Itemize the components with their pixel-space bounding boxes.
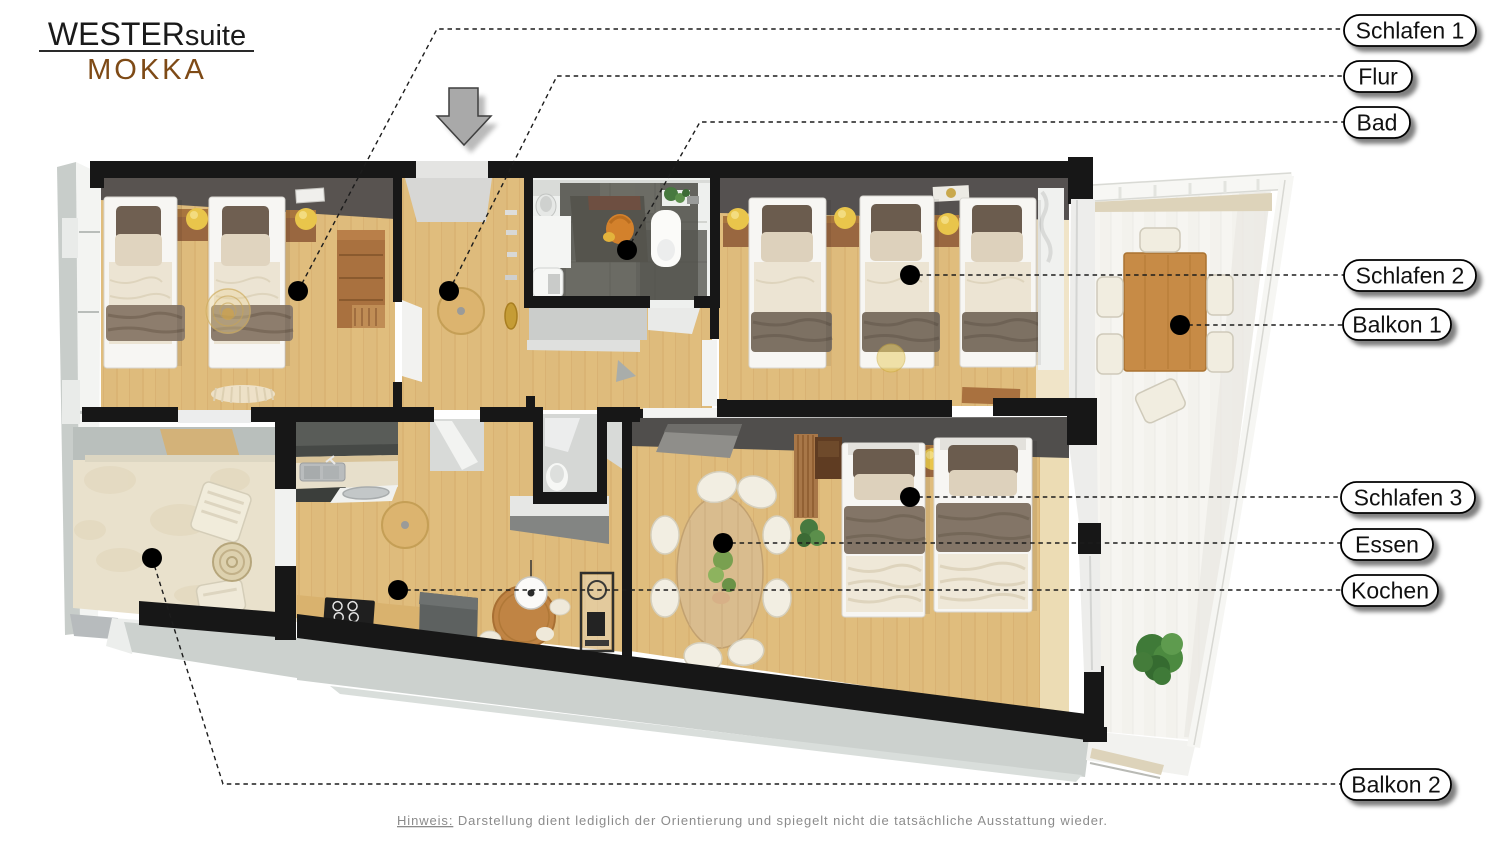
svg-text:Kochen: Kochen xyxy=(1351,578,1429,604)
svg-text:Essen: Essen xyxy=(1355,532,1419,558)
svg-text:WESTERsuite: WESTERsuite xyxy=(48,16,246,52)
svg-text:Balkon 1: Balkon 1 xyxy=(1352,312,1442,338)
svg-text:Bad: Bad xyxy=(1357,110,1398,136)
svg-text:Hinweis: Darstellung dient led: Hinweis: Darstellung dient lediglich der… xyxy=(397,813,1108,828)
svg-text:Flur: Flur xyxy=(1358,64,1398,90)
svg-text:Balkon 2: Balkon 2 xyxy=(1351,772,1441,798)
svg-text:Schlafen 1: Schlafen 1 xyxy=(1356,18,1465,44)
svg-text:Schlafen 3: Schlafen 3 xyxy=(1354,485,1463,511)
svg-text:MOKKA: MOKKA xyxy=(87,54,207,86)
svg-text:Schlafen 2: Schlafen 2 xyxy=(1356,263,1465,289)
